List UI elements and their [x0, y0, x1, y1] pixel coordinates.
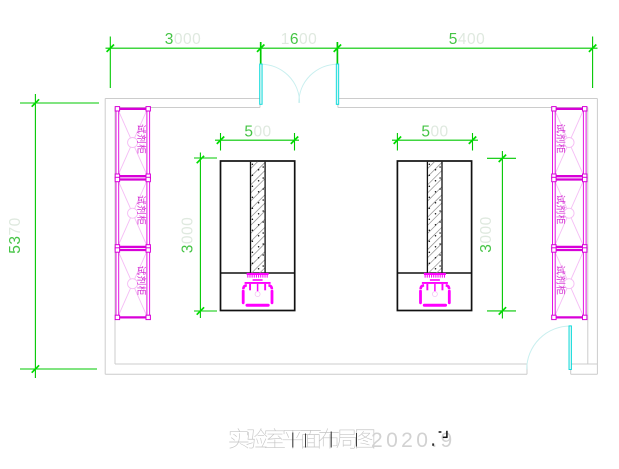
svg-text:2020.9: 2020.9	[371, 429, 456, 452]
svg-text:3000: 3000	[180, 217, 197, 254]
svg-text:3000: 3000	[165, 31, 202, 48]
svg-text:500: 500	[244, 124, 271, 141]
svg-text:1600: 1600	[281, 31, 318, 48]
svg-text:5370: 5370	[7, 217, 24, 254]
svg-text:500: 500	[421, 124, 448, 141]
svg-text:5400: 5400	[449, 31, 486, 48]
svg-text:3000: 3000	[478, 216, 495, 253]
